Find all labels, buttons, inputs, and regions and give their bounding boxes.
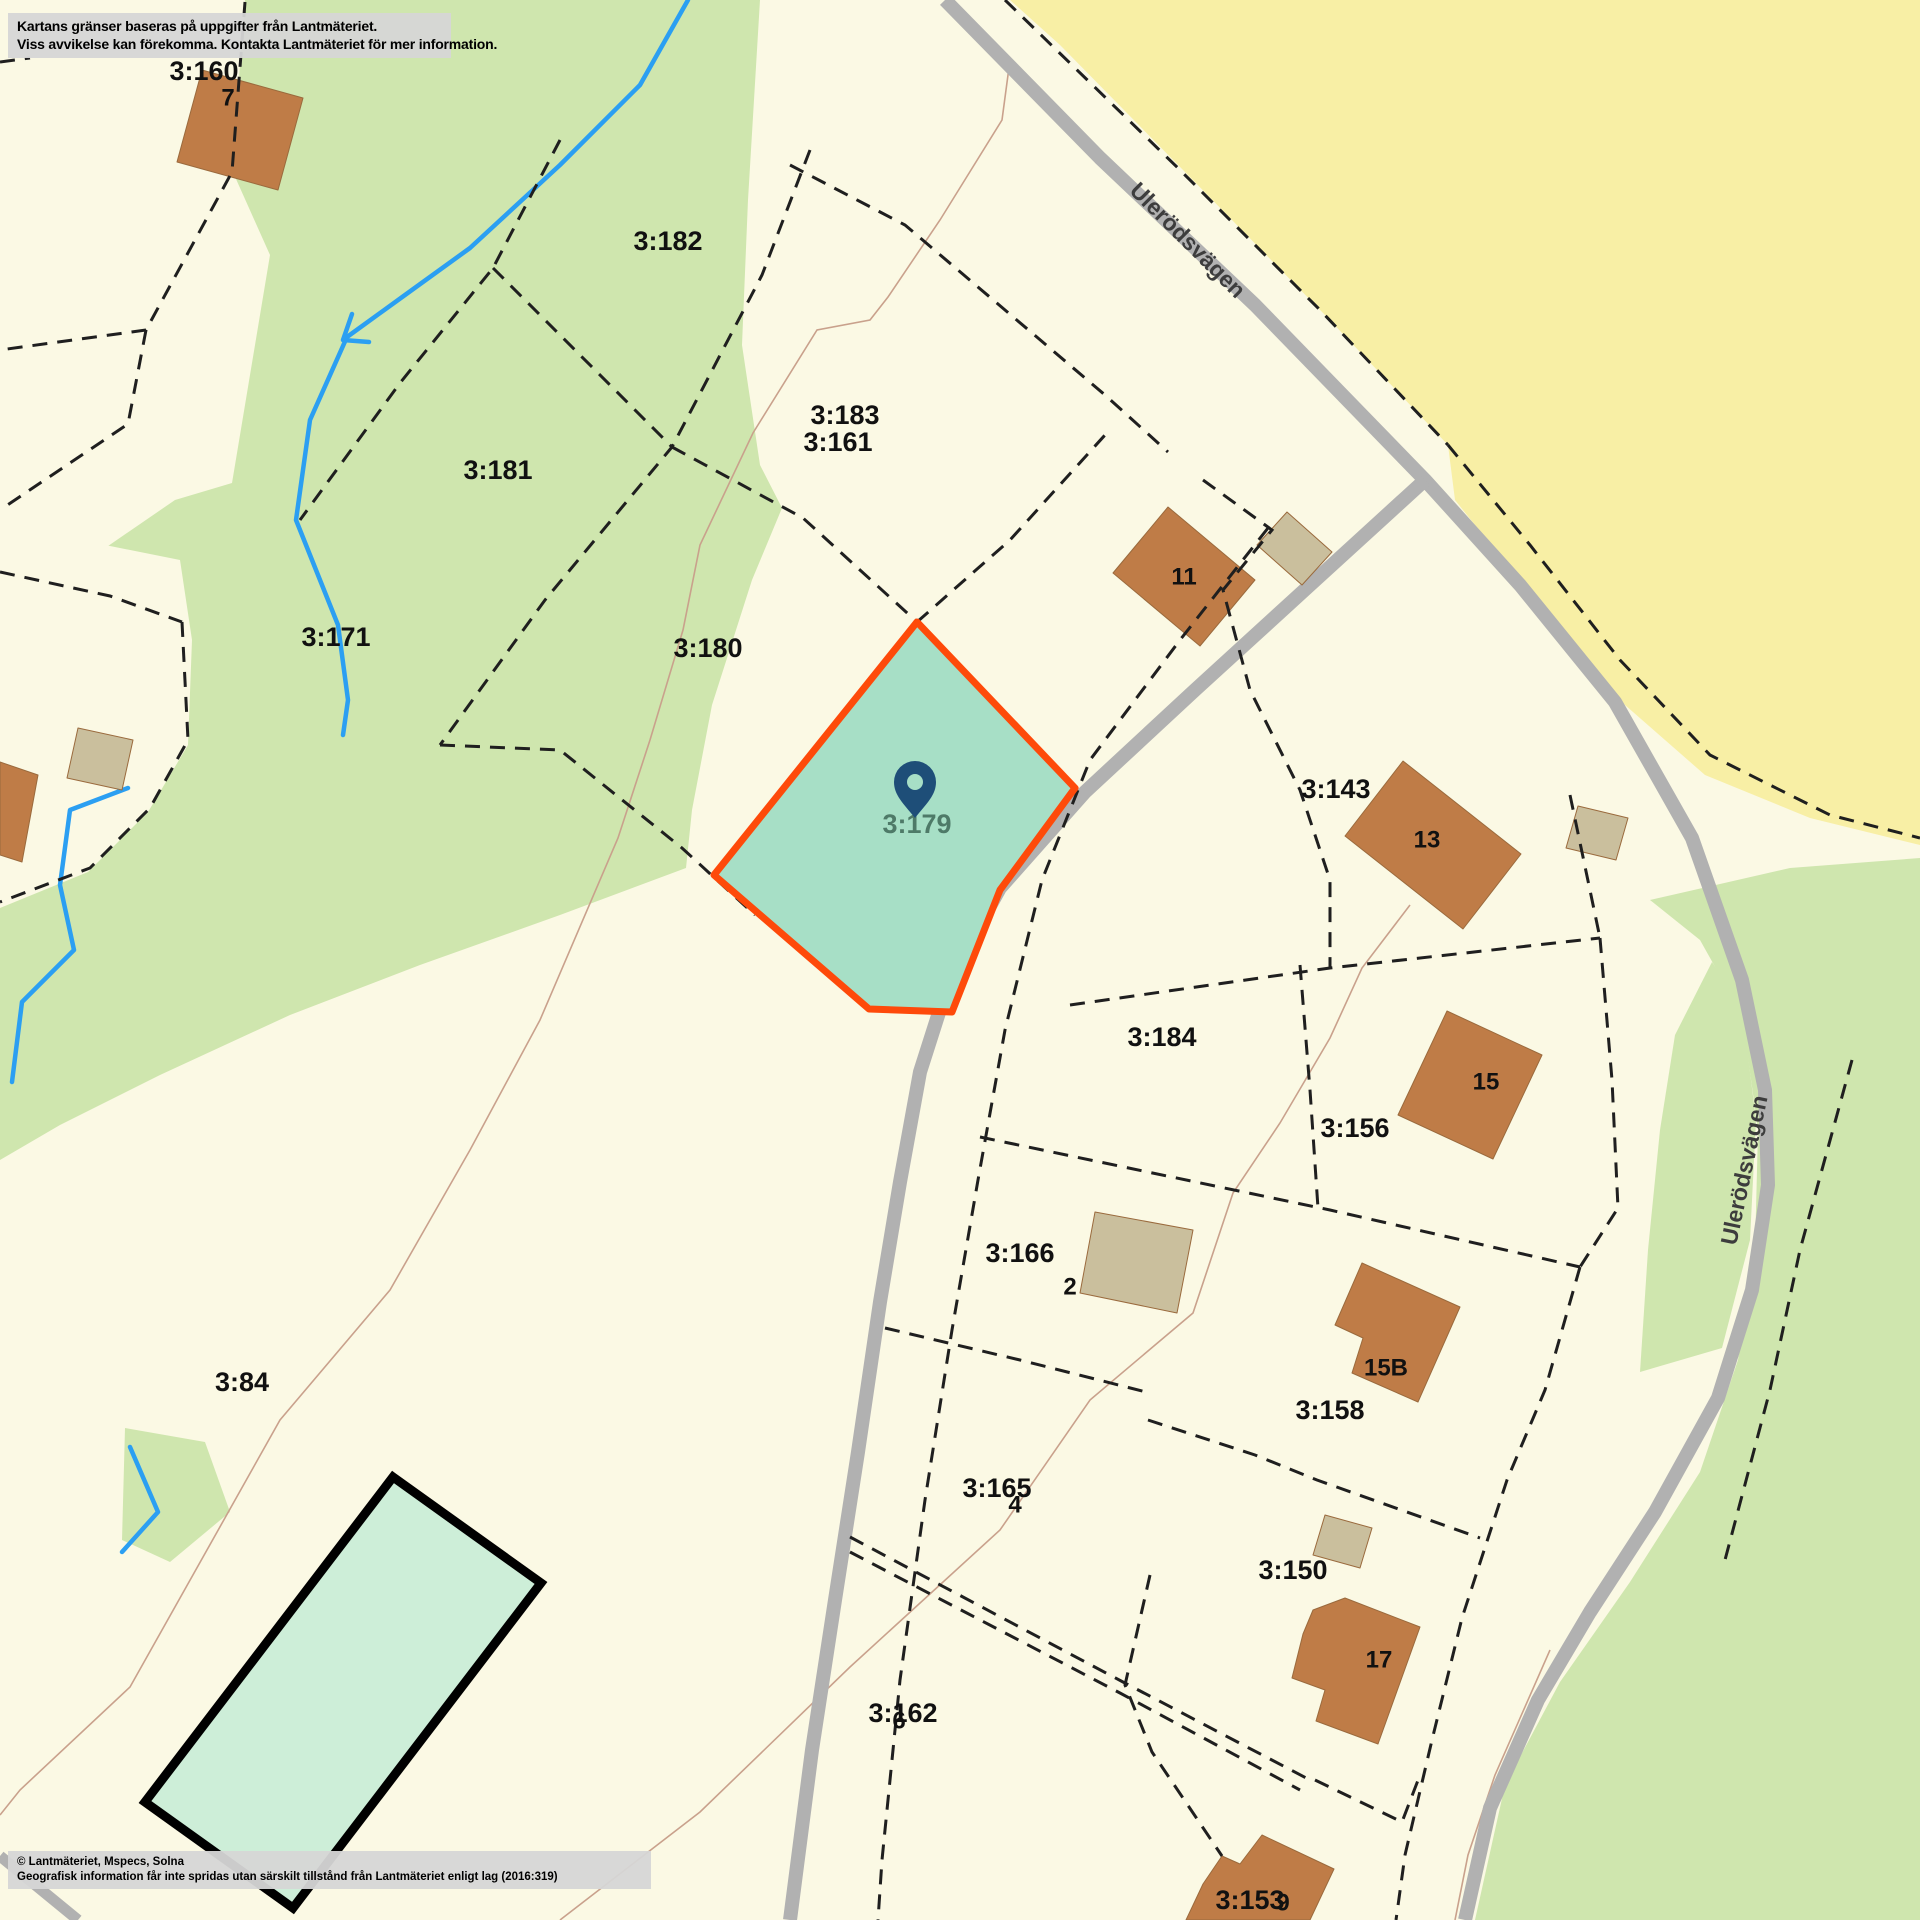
- parcel-label: 3:181: [463, 455, 532, 485]
- house-number-label: 2: [1063, 1274, 1076, 1301]
- parcel-label: 3:150: [1258, 1555, 1327, 1585]
- parcel-label: 3:180: [673, 633, 742, 663]
- copyright-line-1: © Lantmäteriet, Mspecs, Solna: [17, 1855, 642, 1870]
- parcel-label: 3:84: [215, 1367, 269, 1397]
- parcel-label: 3:158: [1295, 1395, 1364, 1425]
- map-copyright: © Lantmäteriet, Mspecs, Solna Geografisk…: [8, 1851, 651, 1889]
- map-disclaimer: Kartans gränser baseras på uppgifter frå…: [8, 13, 451, 58]
- parcel-label: 3:171: [301, 622, 370, 652]
- parcel-label: 3:166: [985, 1238, 1054, 1268]
- disclaimer-line-2: Viss avvikelse kan förekomma. Kontakta L…: [17, 35, 442, 53]
- parcel-label: 3:184: [1127, 1022, 1196, 1052]
- house-number-label: 11: [1171, 564, 1196, 591]
- parcel-label: 3:161: [803, 427, 872, 457]
- house-number-label: 17: [1366, 1647, 1393, 1674]
- house-number-label: 15B: [1364, 1355, 1408, 1382]
- house-number-label: 4: [1008, 1492, 1022, 1519]
- parcel-label: 3:182: [633, 226, 702, 256]
- parcel-label: 3:183: [810, 400, 879, 430]
- parcel-label: 3:153: [1215, 1885, 1284, 1915]
- house-number-label: 15: [1473, 1069, 1500, 1096]
- map-viewport[interactable]: 3:1603:1823:1833:1613:1813:1713:1803:143…: [0, 0, 1920, 1920]
- disclaimer-line-1: Kartans gränser baseras på uppgifter frå…: [17, 17, 442, 35]
- house-number-label: 6: [892, 1708, 905, 1735]
- parcel-label: 3:156: [1320, 1113, 1389, 1143]
- parcel-label: 3:143: [1301, 774, 1370, 804]
- parcel-label: 3:160: [169, 56, 238, 86]
- house-number-label: 9: [1276, 1890, 1289, 1917]
- house-number-label: 13: [1414, 827, 1441, 854]
- cadastral-map[interactable]: 3:1603:1823:1833:1613:1813:1713:1803:143…: [0, 0, 1920, 1920]
- copyright-line-2: Geografisk information får inte spridas …: [17, 1870, 642, 1885]
- house-number-label: 7: [221, 85, 234, 112]
